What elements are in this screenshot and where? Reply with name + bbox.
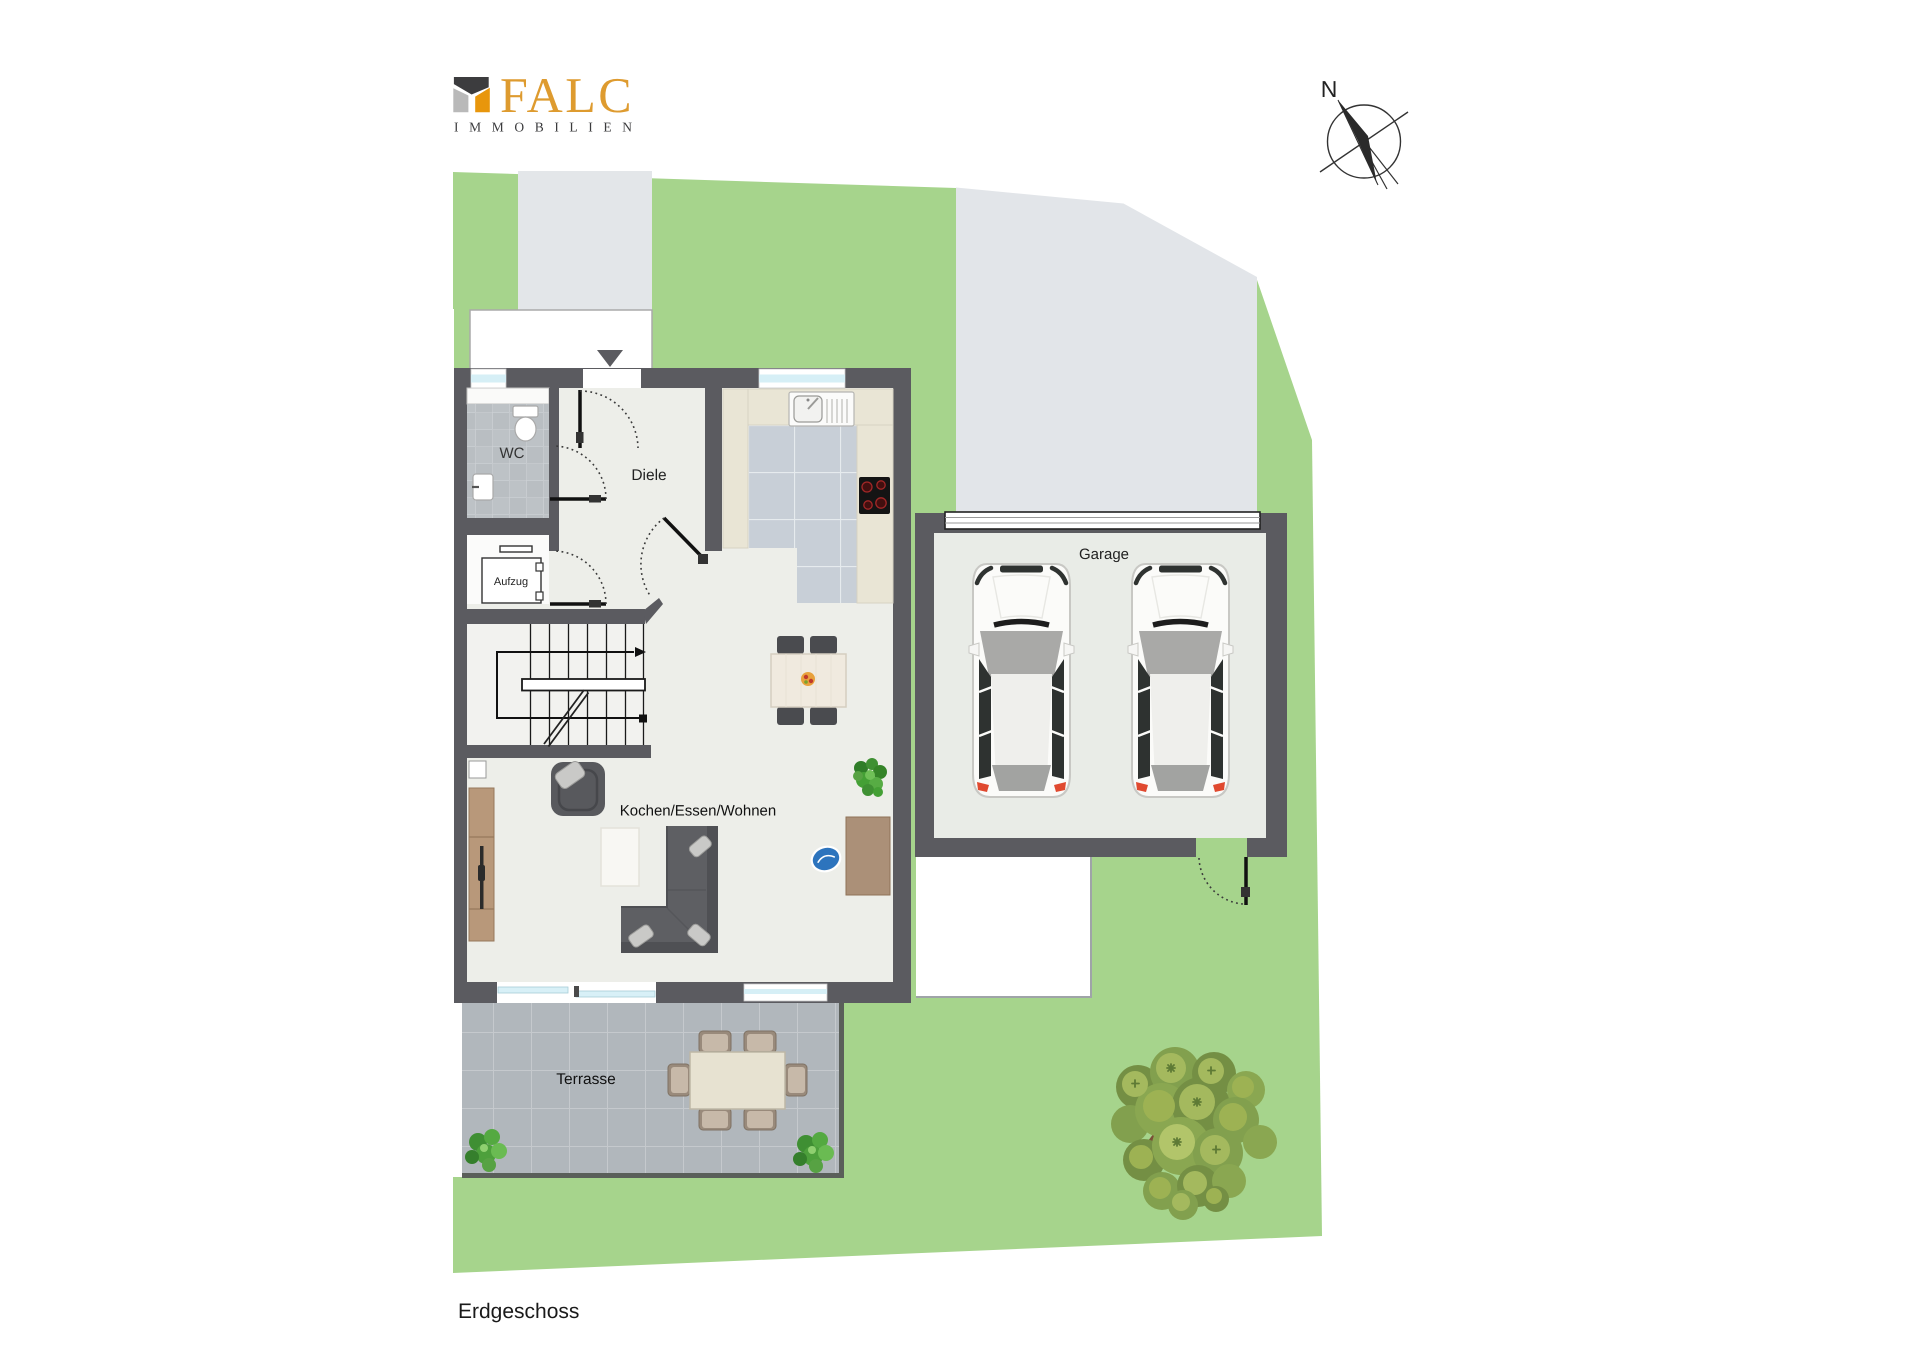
svg-text:Aufzug: Aufzug bbox=[494, 576, 528, 588]
svg-text:IMMOBILIEN: IMMOBILIEN bbox=[454, 120, 632, 135]
svg-text:Diele: Diele bbox=[631, 467, 666, 484]
svg-text:Garage: Garage bbox=[1079, 546, 1129, 563]
svg-text:N: N bbox=[1321, 76, 1338, 102]
svg-text:Erdgeschoss: Erdgeschoss bbox=[458, 1300, 579, 1323]
svg-text:Kochen/Essen/Wohnen: Kochen/Essen/Wohnen bbox=[620, 803, 777, 820]
svg-text:FALC: FALC bbox=[500, 67, 634, 123]
svg-text:Terrasse: Terrasse bbox=[556, 1071, 615, 1088]
svg-text:WC: WC bbox=[500, 445, 525, 462]
